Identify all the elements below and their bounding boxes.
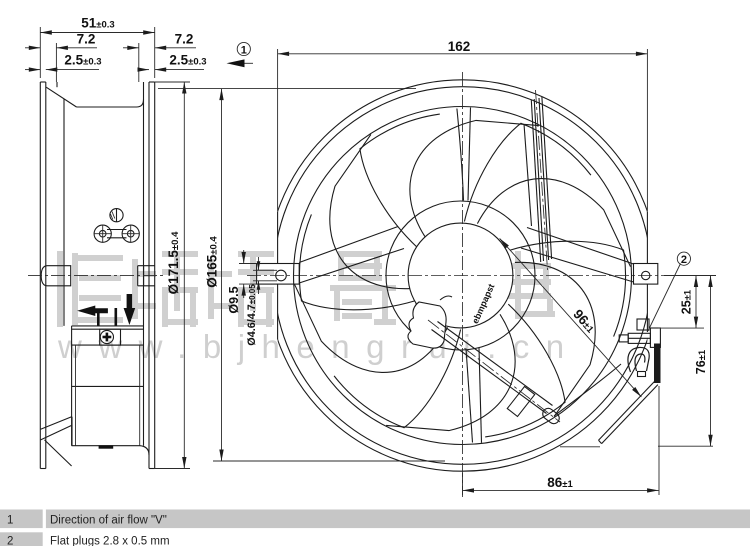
svg-text:2: 2: [7, 536, 13, 546]
svg-text:Flat plugs 2.8 x 0.5 mm: Flat plugs 2.8 x 0.5 mm: [50, 536, 170, 546]
svg-text:162: 162: [448, 39, 471, 54]
svg-text:Ø4.6/4.7±0.05: Ø4.6/4.7±0.05: [246, 284, 258, 346]
svg-text:2: 2: [681, 254, 687, 266]
svg-text:2.5±0.3: 2.5±0.3: [64, 53, 101, 68]
svg-text:www.bjhengrui.cn: www.bjhengrui.cn: [57, 328, 581, 365]
svg-text:7.2: 7.2: [77, 32, 96, 47]
svg-text:Ø171.5±0.4: Ø171.5±0.4: [166, 231, 181, 294]
svg-text:25±1: 25±1: [680, 289, 694, 314]
svg-text:7.2: 7.2: [175, 32, 194, 47]
svg-text:1: 1: [241, 45, 247, 57]
svg-text:86±1: 86±1: [547, 475, 573, 490]
svg-text:Direction of air flow "V": Direction of air flow "V": [50, 515, 167, 527]
svg-text:51±0.3: 51±0.3: [81, 16, 114, 31]
svg-text:1: 1: [7, 515, 13, 527]
svg-text:2.5±0.3: 2.5±0.3: [169, 53, 206, 68]
svg-text:Ø9.5: Ø9.5: [227, 286, 241, 313]
svg-text:76±1: 76±1: [694, 349, 708, 374]
svg-text:Ø165±0.4: Ø165±0.4: [205, 236, 220, 288]
